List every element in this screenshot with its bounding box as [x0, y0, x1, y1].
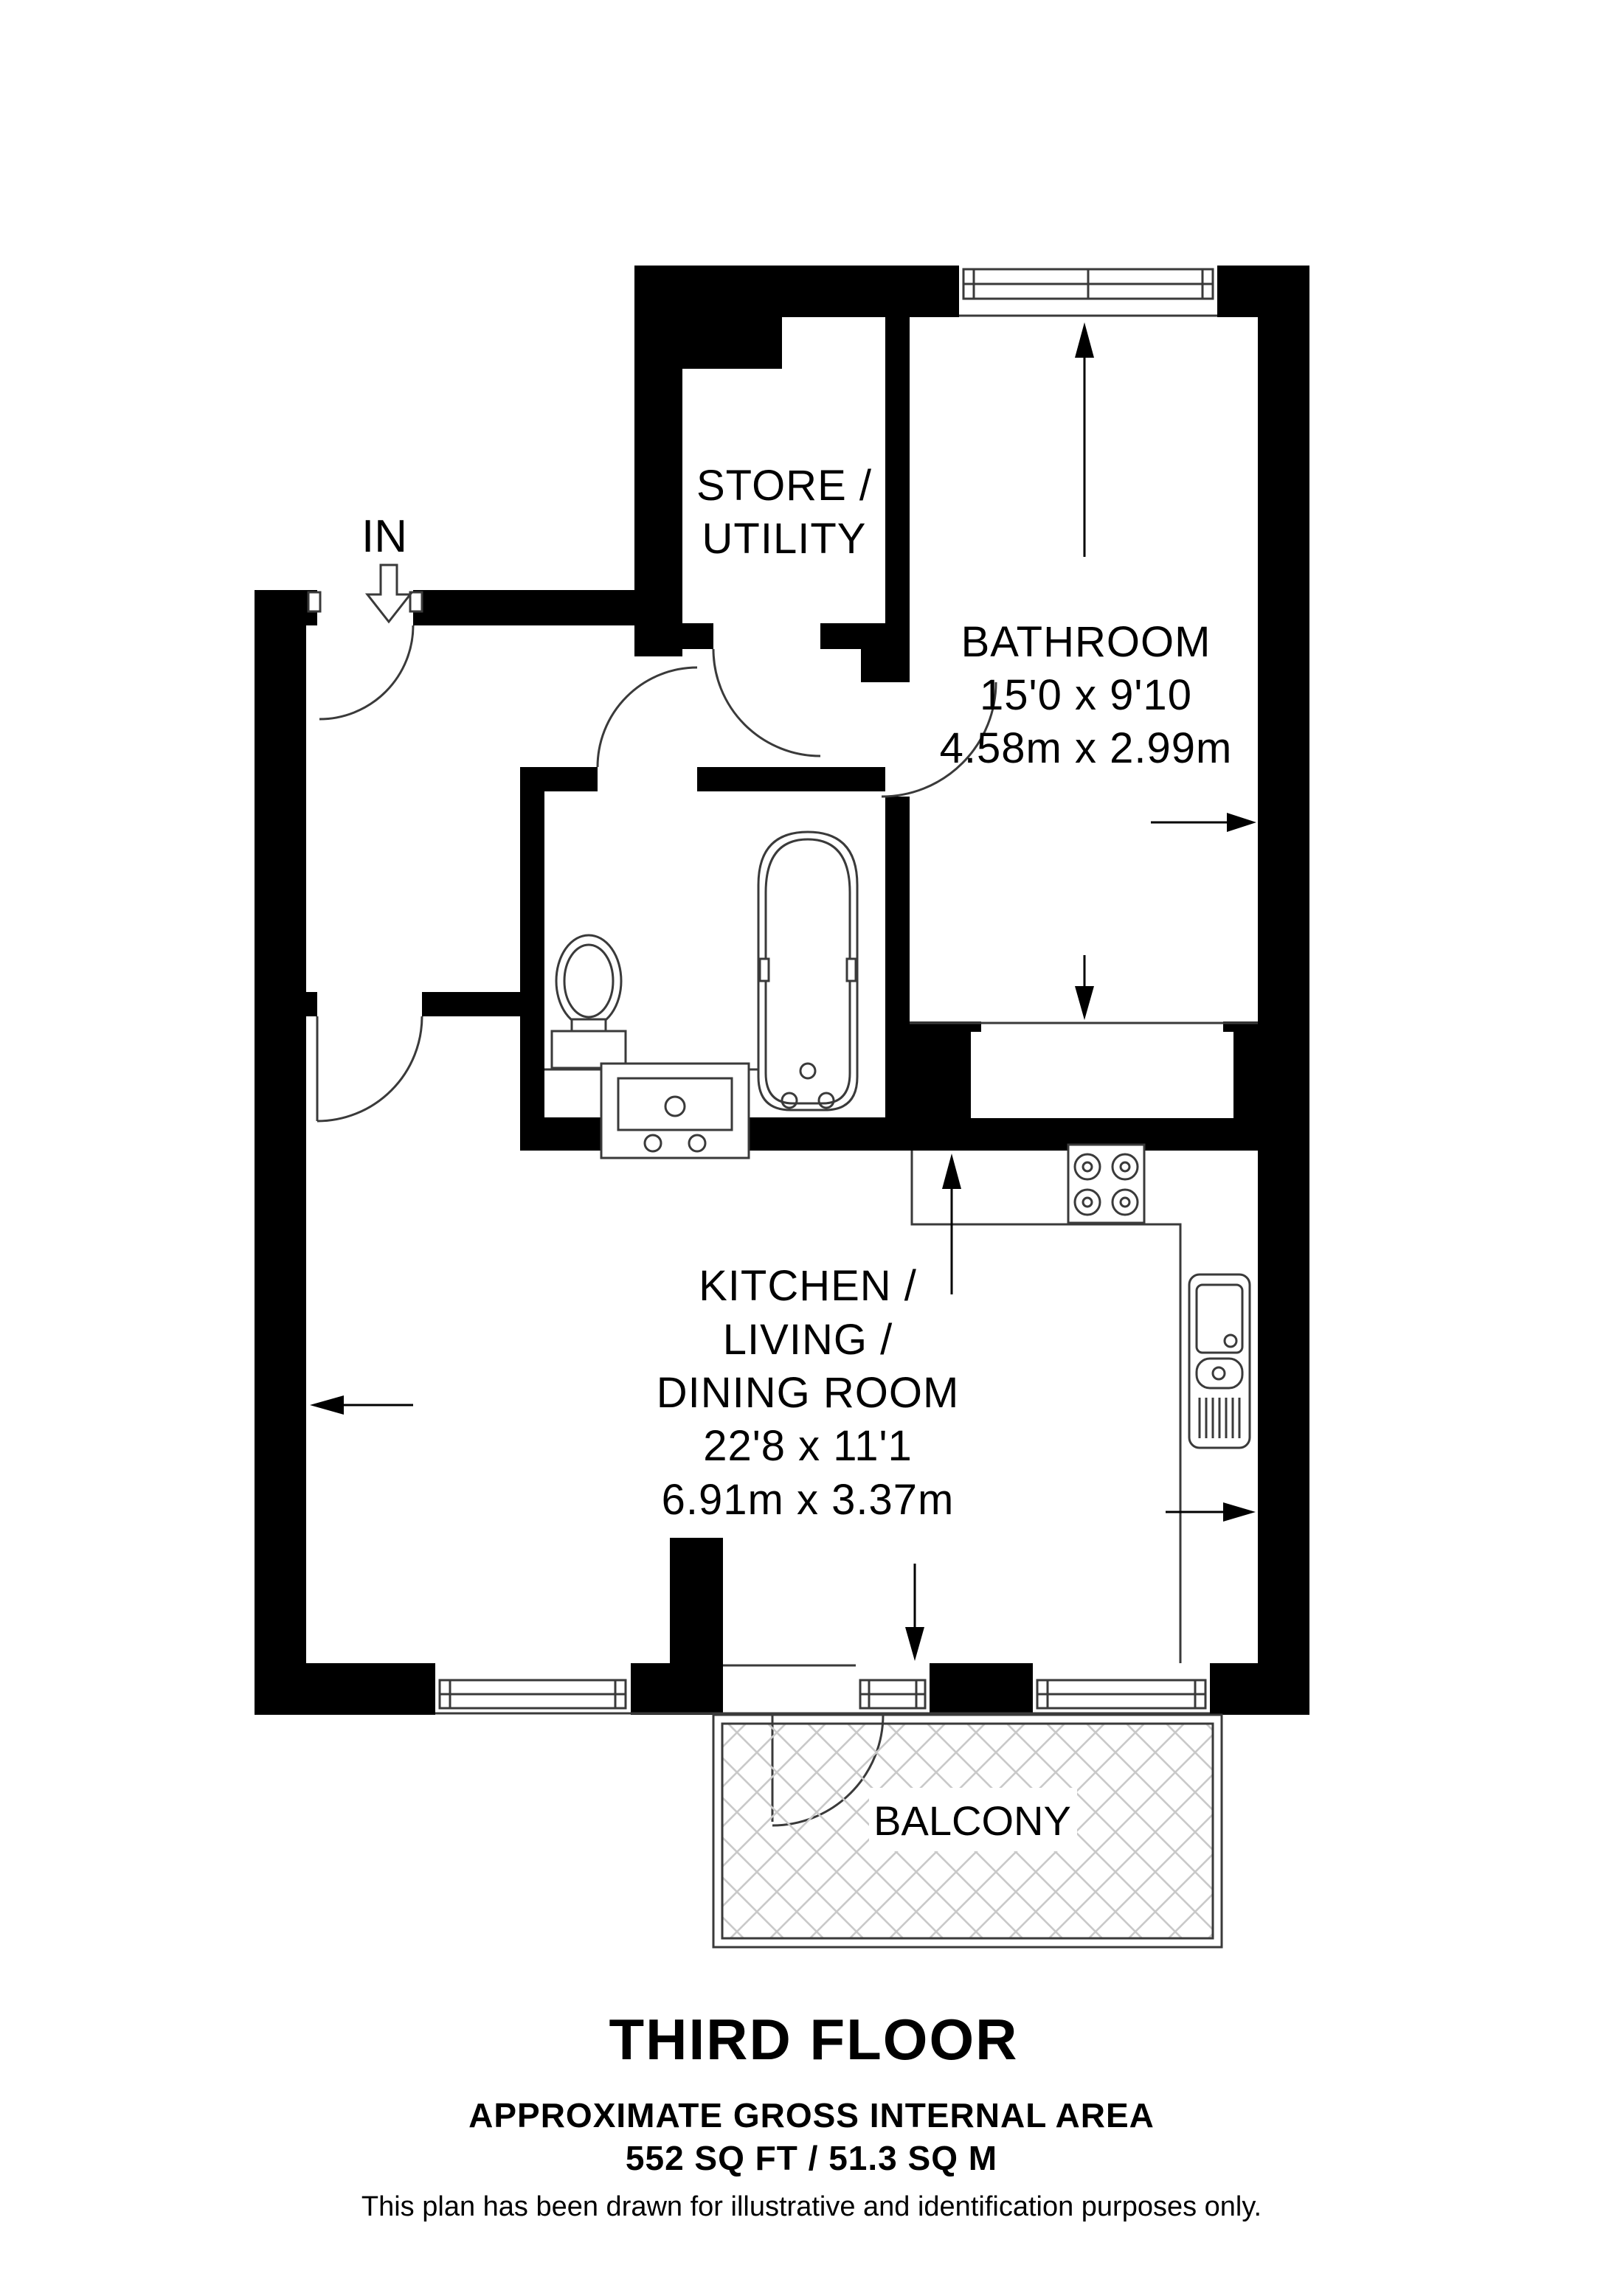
- kitchen-label-line2: LIVING /: [723, 1316, 893, 1364]
- wall-bathroom-west-lower: [885, 797, 910, 1151]
- wall-bottom-corner: [1210, 1663, 1309, 1715]
- disclaimer-text: This plan has been drawn for illustrativ…: [361, 2191, 1262, 2222]
- toilet-icon: [552, 935, 626, 1068]
- window-living-mid: [860, 1680, 925, 1708]
- wall-bottom-b: [631, 1663, 723, 1715]
- wall-bottom-column: [670, 1538, 723, 1667]
- store-label-line2: UTILITY: [702, 515, 867, 563]
- kitchen-label-line3: DINING ROOM: [657, 1369, 960, 1417]
- wall-store-bottom-left: [634, 623, 713, 649]
- wall-store-left: [634, 291, 682, 656]
- window-bathroom: [959, 269, 1217, 316]
- innerbath-door-arc: [598, 667, 697, 767]
- store-door-arc: [713, 649, 820, 756]
- bathroom-label: BATHROOM: [961, 618, 1211, 666]
- bathtub-icon: [758, 832, 857, 1110]
- bathroom-dim-metric: 4.58m x 2.99m: [940, 724, 1233, 772]
- wall-top: [634, 266, 959, 317]
- arrow-bathroom-up: [1075, 322, 1094, 557]
- wall-innerbath-top-b: [697, 767, 885, 791]
- wall-bottom-a: [255, 1663, 435, 1715]
- kitchen-dim-metric: 6.91m x 3.37m: [662, 1476, 955, 1524]
- wall-right: [1258, 266, 1309, 1715]
- arrow-bathroom-right: [1151, 813, 1256, 832]
- wall-niche-right: [1233, 1022, 1258, 1151]
- wall-innerbath-left: [520, 767, 544, 1151]
- entrance-label: IN: [361, 511, 407, 562]
- entry-door: [308, 592, 422, 719]
- balcony-label: BALCONY: [873, 1797, 1071, 1844]
- arrow-kitchen-down: [905, 1564, 924, 1661]
- wall-store-east-upper: [885, 317, 910, 682]
- wall-hall-top: [413, 590, 634, 625]
- store-label-line1: STORE /: [696, 462, 872, 510]
- kitchen-dim-imperial: 22'8 x 11'1: [703, 1422, 913, 1470]
- arrow-kitchen-right: [1166, 1502, 1256, 1522]
- wall-niche-left: [910, 1022, 971, 1151]
- wall-store-step: [682, 317, 782, 369]
- floorplan-drawing: IN STORE / UTILITY BATHROOM 15'0 x 9'10 …: [0, 0, 1623, 2296]
- floorplan-page: IN STORE / UTILITY BATHROOM 15'0 x 9'10 …: [0, 0, 1623, 2296]
- wall-bottom-pier: [930, 1663, 1033, 1715]
- arrow-bathroom-down: [1075, 955, 1094, 1020]
- window-living-right: [1037, 1680, 1205, 1708]
- window-living-left: [440, 1680, 626, 1708]
- wall-partition-a: [306, 992, 317, 1016]
- kitchen-sink-icon: [1189, 1274, 1250, 1448]
- wall-lobby-stub: [861, 649, 885, 682]
- doors: [308, 592, 996, 1825]
- living-door: [317, 1016, 422, 1121]
- living-door-arc: [317, 1016, 422, 1121]
- entry-arrow-icon: [367, 565, 410, 622]
- kitchen-label-line1: KITCHEN /: [699, 1262, 917, 1310]
- floor-title: THIRD FLOOR: [609, 2007, 1019, 2072]
- hob-icon: [1068, 1145, 1144, 1223]
- wall-left: [255, 590, 306, 1715]
- wall-store-bottom-right: [820, 623, 885, 649]
- area-value: 552 SQ FT / 51.3 SQ M: [626, 2139, 997, 2177]
- bathroom-dim-imperial: 15'0 x 9'10: [980, 671, 1192, 719]
- arrow-kitchen-left: [310, 1395, 413, 1415]
- wall-partition-b: [422, 992, 520, 1016]
- entry-door-arc: [319, 625, 413, 719]
- area-heading: APPROXIMATE GROSS INTERNAL AREA: [468, 2096, 1155, 2134]
